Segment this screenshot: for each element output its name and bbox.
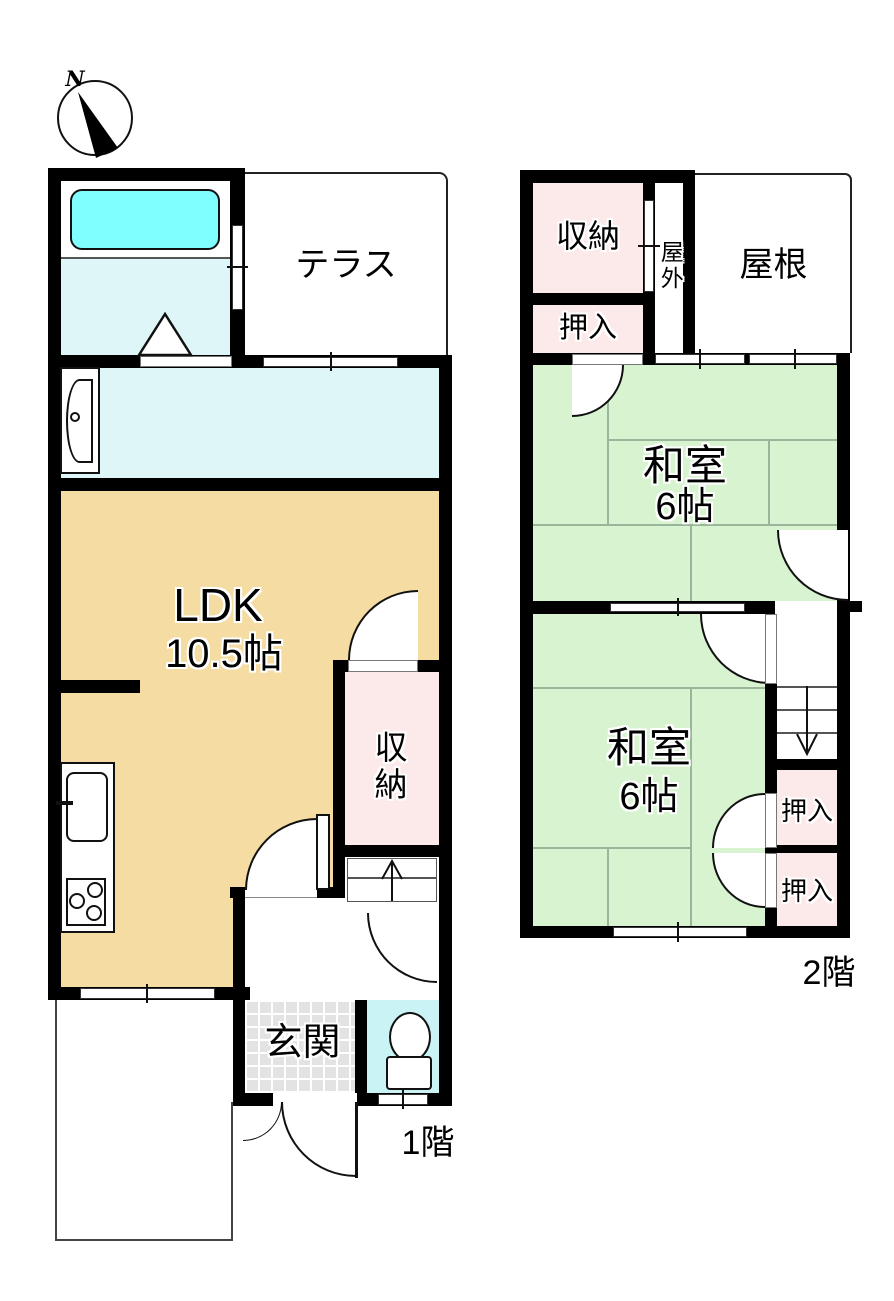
ldk-size-label: 10.5帖: [58, 632, 390, 677]
washroom-area: [58, 367, 439, 478]
wall: [520, 170, 533, 938]
tatami-line: [607, 439, 837, 441]
closet-b-label: 押入: [775, 877, 839, 906]
room1-label: 和室: [533, 442, 837, 489]
toilet-tank: [386, 1056, 432, 1090]
window-tick: [146, 984, 148, 1003]
porch-outline-bottom: [55, 1239, 233, 1241]
terrace-label: テラス: [246, 246, 446, 284]
tatami-line: [533, 687, 765, 689]
window-tick: [699, 349, 701, 369]
washbasin-drain: [70, 412, 80, 422]
porch-outline-left: [55, 1000, 57, 1241]
stove-burner: [87, 882, 103, 898]
wall: [520, 170, 695, 183]
wall: [333, 845, 452, 857]
entrance-label: 玄関: [245, 1022, 360, 1065]
wall: [765, 758, 850, 770]
bath-door-threshold: [140, 356, 232, 367]
window: [749, 354, 837, 364]
wall-stub: [48, 680, 140, 693]
bathtub: [70, 189, 220, 250]
outside-label: 屋外: [659, 240, 685, 292]
wall: [333, 660, 345, 898]
wall: [765, 845, 850, 853]
tatami-line: [533, 847, 690, 849]
wall-stub: [850, 601, 862, 612]
ldk-label: LDK: [58, 580, 378, 632]
entrance-door-arc: [281, 1102, 356, 1177]
kitchen-faucet: [56, 801, 73, 805]
closet-a-label: 押入: [775, 797, 839, 826]
wall: [48, 478, 452, 491]
wall: [439, 355, 452, 1102]
washbasin-bowl: [66, 379, 93, 463]
hall-door-leaf-f2: [765, 614, 777, 684]
hall-door-leaf: [316, 814, 330, 890]
tatami-line: [690, 524, 692, 601]
stove-burner: [86, 905, 102, 921]
porch-outline-right: [231, 1102, 233, 1241]
storage-label-f2: 収納: [533, 219, 643, 255]
stairs-up-arrow-icon: [377, 857, 407, 903]
bath-folding-door-icon: [137, 312, 193, 357]
tatami-line: [607, 847, 609, 926]
sliding-door-tick: [677, 598, 679, 616]
wall: [233, 887, 245, 1102]
roof-label: 屋根: [695, 246, 852, 284]
wall: [48, 168, 245, 181]
stair-landing: [775, 614, 837, 683]
wall: [533, 293, 655, 305]
room2-size-label: 6帖: [533, 776, 765, 819]
window-tick: [677, 922, 679, 942]
toilet-bowl: [389, 1012, 431, 1062]
closet-top-label: 押入: [533, 312, 643, 344]
closet-top-door-leaf: [572, 354, 643, 365]
window-tick: [330, 352, 332, 371]
floor-plan-canvas: N: [0, 0, 894, 1301]
stove-burner: [69, 893, 85, 909]
window-tick: [227, 266, 248, 268]
floor2-label: 2階: [793, 954, 865, 992]
window-tick: [794, 349, 796, 369]
stairs-down-arrow-icon: [792, 684, 822, 758]
entrance-small-door-arc: [243, 1102, 282, 1141]
floor1-label: 1階: [392, 1124, 464, 1162]
storage-label-f1: 収納: [372, 730, 410, 804]
window: [613, 927, 747, 937]
window-tick: [402, 1090, 404, 1109]
room2-label: 和室: [533, 724, 765, 771]
kitchen-sink: [66, 772, 108, 842]
compass-north-label: N: [60, 66, 90, 91]
room1-size-label: 6帖: [533, 486, 837, 529]
